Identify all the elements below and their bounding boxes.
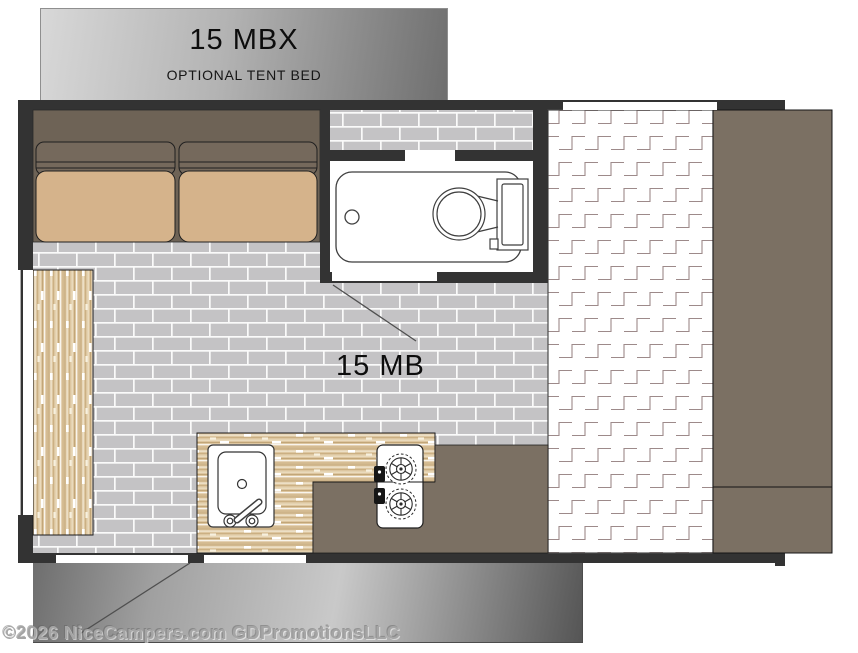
- stove-burner-top: [386, 454, 416, 484]
- floorplan-drawing: [0, 0, 858, 653]
- bathroom-door-opening: [405, 150, 455, 161]
- watermark-text: ©2026 NiceCampers.com GDPromotionsLLC: [3, 623, 400, 644]
- floorplan-canvas: 15 MBX OPTIONAL TENT BED: [0, 0, 858, 653]
- bottom-door-opening: [56, 555, 188, 563]
- bedside-window-opening: [563, 102, 717, 110]
- plan-model-label: 15 MB: [336, 350, 425, 383]
- stove-burner-bottom: [386, 489, 416, 519]
- left-door-opening: [23, 270, 33, 515]
- bathroom-bottom-opening: [332, 272, 437, 281]
- toilet-flush: [490, 239, 498, 249]
- kitchen: [197, 433, 548, 553]
- tent-bed-area: [548, 110, 832, 553]
- toilet-bowl: [433, 188, 485, 240]
- bed-mattress: [548, 110, 713, 553]
- sofa: [33, 110, 320, 242]
- sink-knob-right: [246, 515, 258, 527]
- bottom-window-opening: [204, 555, 306, 563]
- bench-seat: [33, 270, 93, 535]
